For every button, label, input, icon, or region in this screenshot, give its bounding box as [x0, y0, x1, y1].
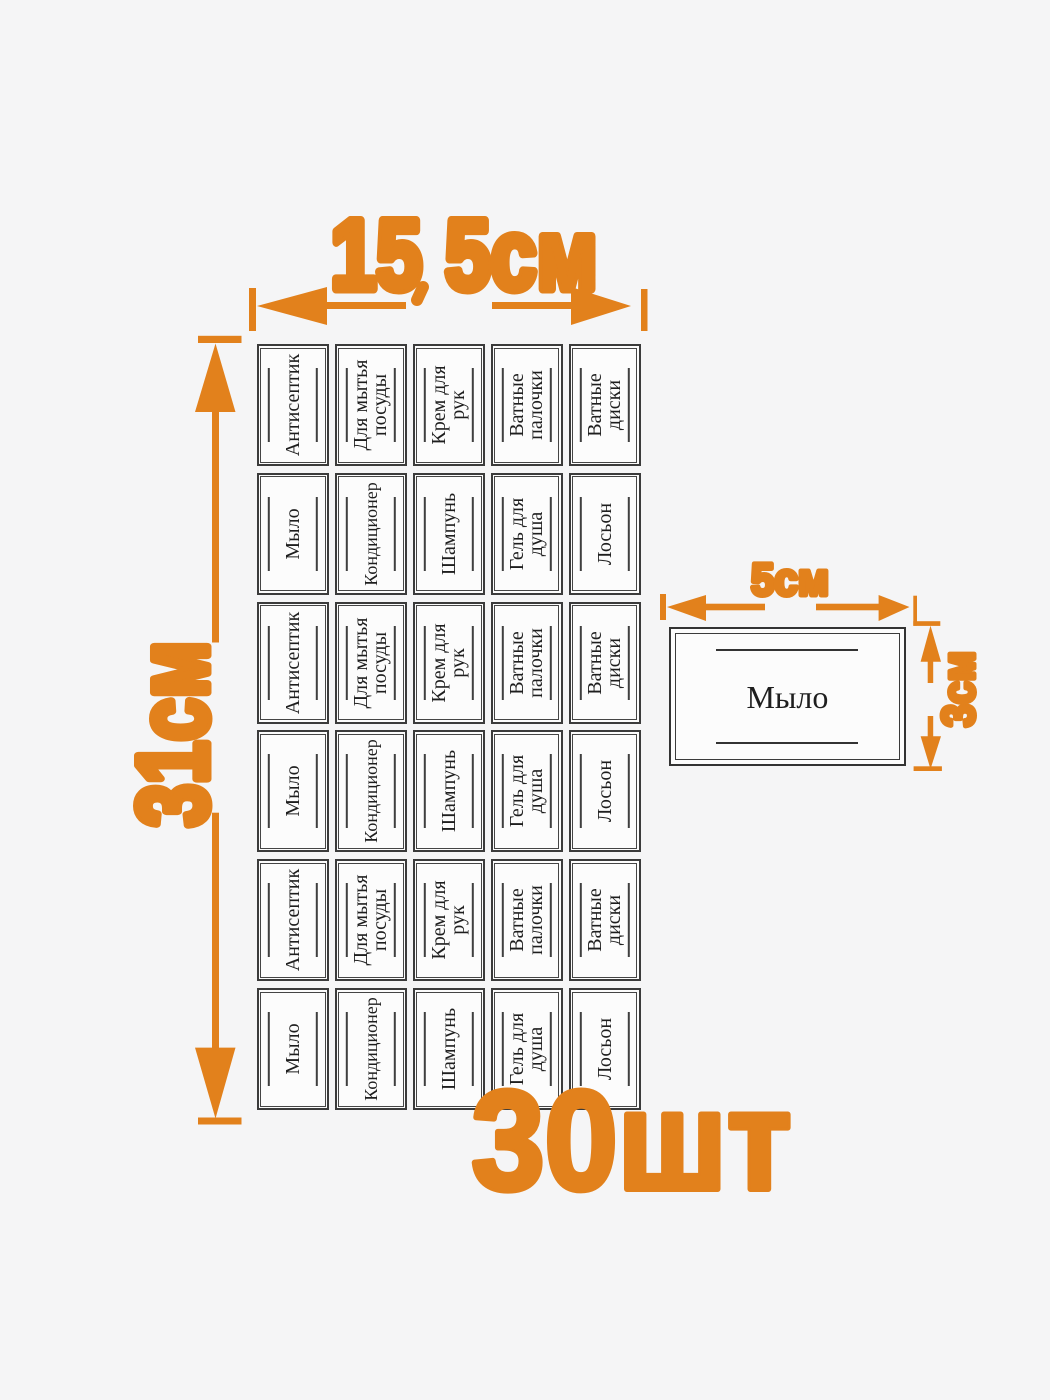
- svg-text:5см: 5см: [751, 554, 829, 605]
- svg-text:30шт: 30шт: [472, 1061, 792, 1219]
- svg-text:3см: 3см: [933, 651, 984, 727]
- svg-text:31см: 31см: [117, 641, 228, 827]
- svg-text:15,5см: 15,5см: [331, 199, 598, 310]
